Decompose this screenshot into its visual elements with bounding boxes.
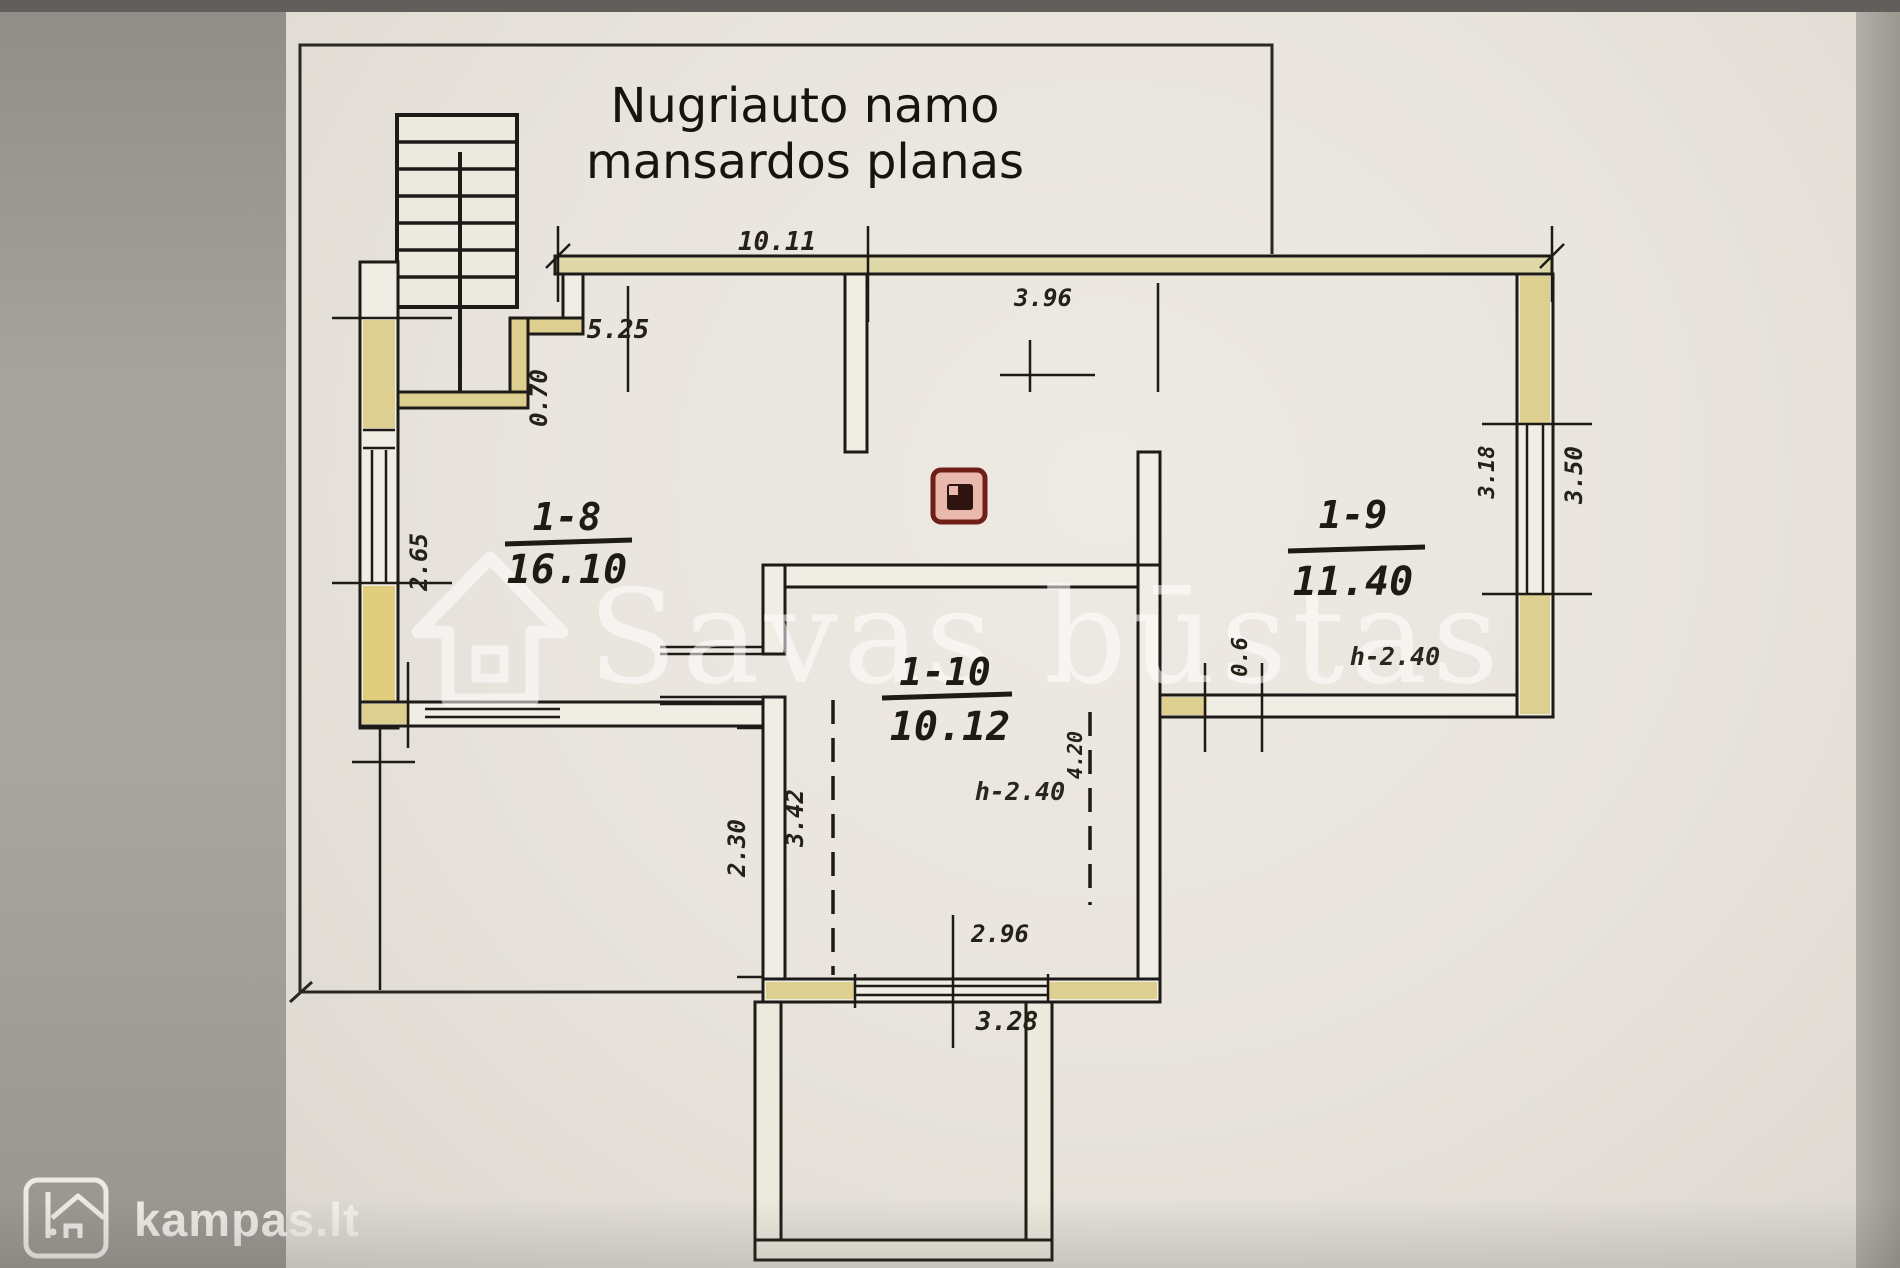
dim-door-small: 0.6 (1228, 637, 1253, 677)
chimney-symbol (933, 470, 985, 522)
balcony-wall-left (755, 1002, 781, 1254)
wall-room110-left-lower (763, 697, 785, 1002)
chimney-flue-notch (949, 486, 958, 495)
wall-room110-right-stub (1138, 452, 1160, 565)
dim-window-outer: 3.50 (1560, 446, 1588, 505)
room18-area: 16.10 (507, 547, 627, 593)
wall-room110-bottom-yellow-right (1048, 982, 1157, 999)
room110-area: 10.12 (890, 704, 1010, 750)
kampas-logo-icon (22, 1176, 118, 1262)
dim-dashed-right: 4.20 (1063, 731, 1087, 779)
wall-jog-vertical (563, 274, 583, 322)
title-line-1: Nugriauto namo (610, 78, 999, 134)
kampas-logo: kampas.lt (22, 1176, 360, 1262)
floor-plan-drawing: Nugriauto namo mansardos planas (0, 0, 1900, 1268)
dim-stair-offset: 0.70 (525, 369, 553, 427)
dim-wall-lower-left: 2.30 (723, 819, 751, 878)
dim-window-inner: 3.18 (1475, 446, 1500, 500)
wall-left-yellow-upper (363, 320, 395, 428)
wall-interior-hall (845, 274, 867, 452)
wall-south-room18-yellow (362, 704, 410, 724)
dim-balcony-width: 2.96 (970, 920, 1029, 948)
logo-frame (26, 1180, 106, 1256)
plan-title: Nugriauto namo mansardos planas (586, 78, 1024, 190)
balcony-wall-right (1026, 1002, 1052, 1254)
dim-top-total: 10.11 (738, 227, 816, 257)
title-line-2: mansardos planas (586, 134, 1024, 190)
floor-plan-photo: Nugriauto namo mansardos planas (0, 0, 1900, 1268)
room19-area: 11.40 (1293, 559, 1413, 605)
logo-dot (50, 1229, 57, 1236)
dim-room19-width: 3.96 (1013, 284, 1072, 312)
wall-stair-south (398, 392, 528, 408)
dim-window-left: 2.65 (405, 533, 433, 592)
logo-house-body (66, 1226, 80, 1238)
room110-id: 1-10 (899, 650, 991, 694)
balcony-wall-bottom (755, 1240, 1052, 1260)
room18-id: 1-8 (533, 495, 602, 539)
balcony (755, 1002, 1052, 1260)
watermark-house-window (476, 650, 504, 678)
logo-house-roof (52, 1196, 104, 1218)
wall-room110-bottom-yellow-left (766, 982, 855, 999)
room19-rule (1288, 547, 1425, 551)
wall-top (555, 256, 1552, 274)
room110-height: h-2.40 (975, 777, 1065, 806)
room19-height: h-2.40 (1350, 642, 1440, 671)
dim-hall-width: 5.25 (587, 315, 650, 345)
dim-dashed-left: 3.42 (781, 789, 809, 848)
wall-room19-east-yellow-upper (1520, 276, 1550, 424)
dim-bottom-total: 3.28 (975, 1007, 1039, 1037)
kampas-logo-text: kampas.lt (134, 1192, 360, 1247)
wall-room19-east-yellow-lower (1520, 594, 1550, 714)
room18-rule (505, 540, 632, 544)
room19-id: 1-9 (1319, 493, 1388, 537)
staircase (397, 115, 517, 392)
